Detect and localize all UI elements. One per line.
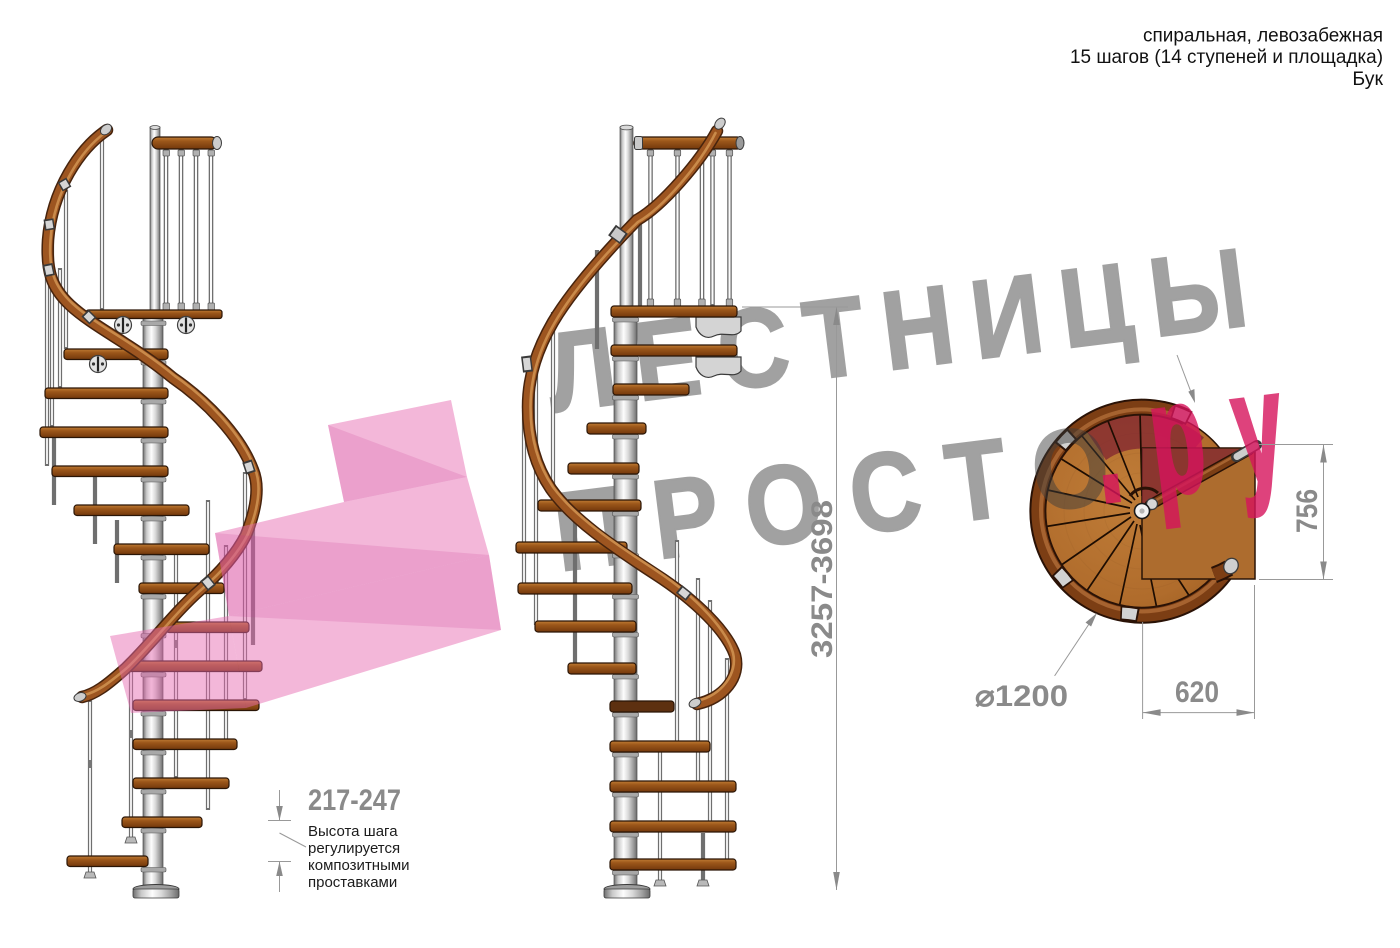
svg-text:проставками: проставками [308, 874, 397, 891]
svg-text:15 шагов (14 ступеней и площад: 15 шагов (14 ступеней и площадка) [1070, 46, 1383, 68]
svg-text:620: 620 [1175, 676, 1219, 709]
svg-text:регулируется: регулируется [308, 840, 400, 857]
svg-text:217-247: 217-247 [308, 784, 401, 817]
svg-text:композитными: композитными [308, 857, 410, 874]
svg-text:Высота шага: Высота шага [308, 823, 398, 840]
svg-text:756: 756 [1291, 489, 1324, 533]
svg-text:⌀1200: ⌀1200 [975, 680, 1068, 713]
svg-text:Бук: Бук [1352, 68, 1383, 90]
svg-text:спиральная, левозабежная: спиральная, левозабежная [1143, 25, 1383, 47]
svg-text:3257-3698: 3257-3698 [806, 500, 839, 658]
